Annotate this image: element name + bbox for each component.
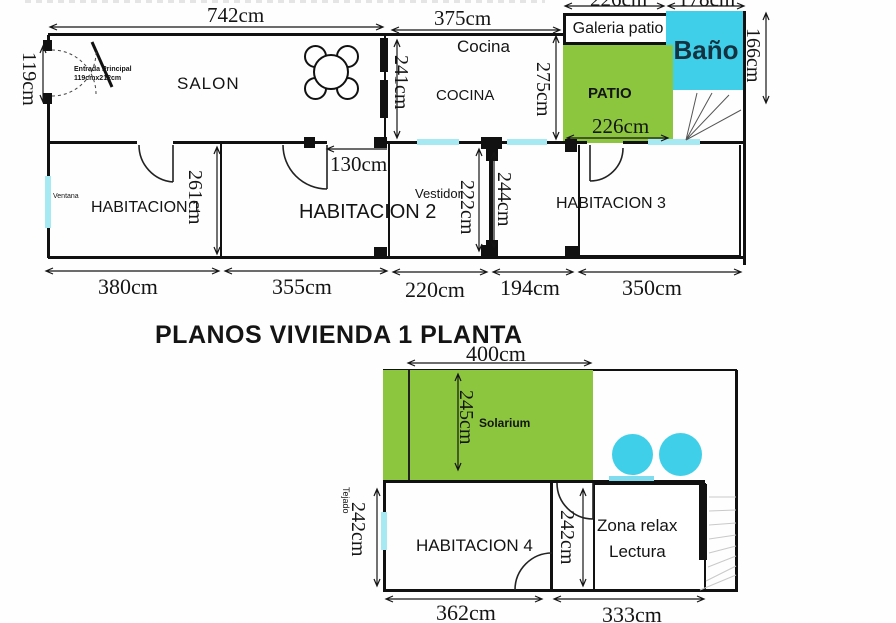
dim-cocina-height: 275cm — [531, 62, 554, 116]
dim-vestidor-width: 220cm — [405, 277, 465, 303]
dim-hab4-width: 362cm — [436, 600, 496, 623]
dim-door-width: 130cm — [330, 152, 387, 177]
dim-salon-wall: 241cm — [389, 55, 412, 109]
dim-solarium-width: 400cm — [466, 341, 526, 367]
hab4-label: HABITACION 4 — [416, 536, 533, 556]
dim-hab2-width: 355cm — [272, 274, 332, 300]
hab3-label: HABITACION 3 — [556, 195, 666, 213]
dim-zona-height: 242cm — [555, 510, 578, 564]
dim-bano-width: 178cm — [678, 0, 735, 12]
dim-patio-width: 226cm — [592, 114, 649, 139]
entrada-label-2: 119cmx212cm — [74, 75, 121, 82]
salon-label: SALON — [177, 74, 240, 94]
dim-vestidor-height: 222cm — [455, 180, 478, 234]
dim-galeria-width: 226cm — [590, 0, 647, 12]
dim-pasillo-width: 194cm — [500, 275, 560, 301]
zona-relax-label-1: Zona relax — [597, 516, 677, 536]
cocina-small-label: Cocina — [457, 37, 510, 57]
stairs-lower-icon — [700, 497, 736, 590]
cocina-label: COCINA — [436, 87, 494, 104]
dim-hab1-width: 380cm — [98, 274, 158, 300]
dim-hab3-height: 244cm — [492, 172, 515, 226]
floorplan-canvas: Galeria patio Baño PATIO — [0, 0, 896, 623]
dim-cocina-width: 375cm — [434, 6, 491, 31]
dim-hab3-width: 350cm — [622, 275, 682, 301]
solarium-label: Solarium — [479, 416, 530, 430]
entrada-label-1: Entrada Principal — [74, 66, 132, 73]
entrance-door-swing — [52, 50, 96, 96]
ventana-label: Ventana — [53, 193, 79, 200]
dim-solarium-height: 245cm — [454, 390, 477, 444]
stairs-upper-icon — [686, 93, 741, 140]
dim-bano-height: 166cm — [741, 28, 764, 82]
dim-salon-width: 742cm — [207, 3, 264, 28]
dim-zona-width: 333cm — [602, 602, 662, 623]
dim-hab1-height: 261cm — [183, 170, 206, 224]
hab2-label: HABITACION 2 — [299, 201, 436, 224]
dim-hab4-height: 242cm — [346, 502, 369, 556]
dim-entrada-height: 119cm — [17, 52, 40, 106]
zona-relax-label-2: Lectura — [609, 542, 666, 562]
